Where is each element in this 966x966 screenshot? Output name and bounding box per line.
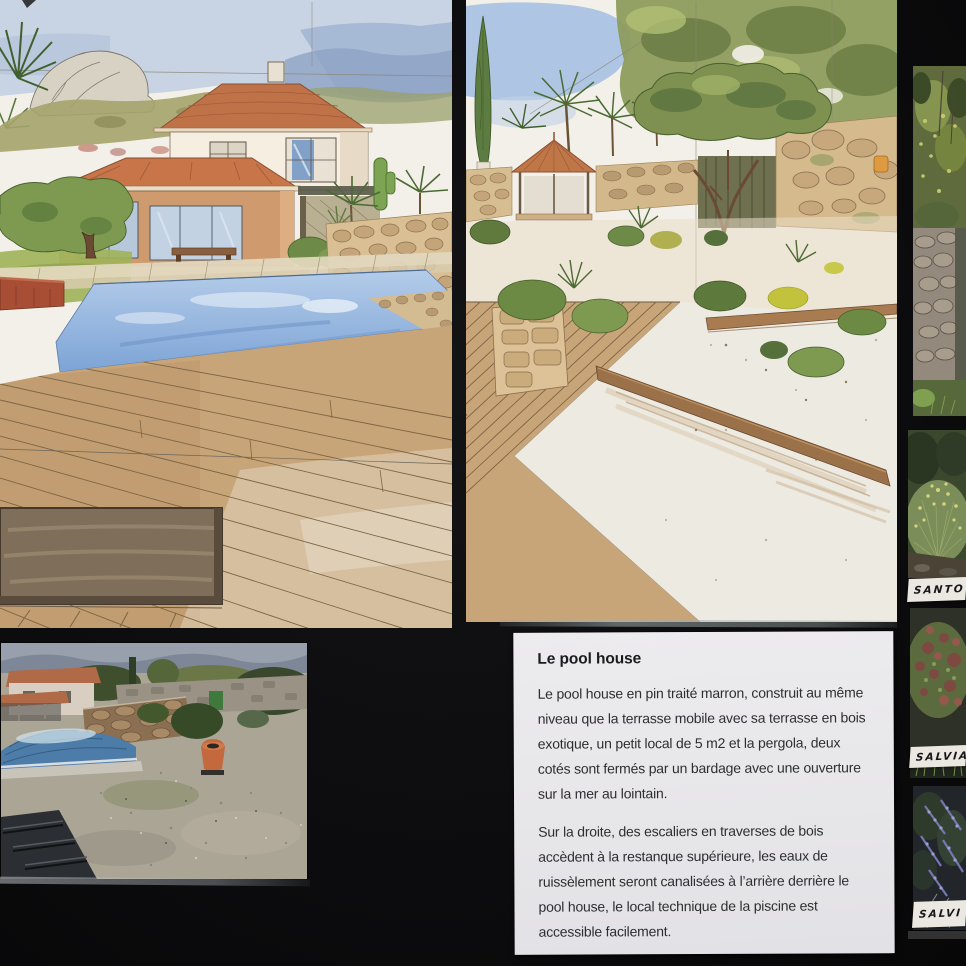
plant-label-salvia-2: SALVI (912, 900, 966, 928)
site-photo (1, 643, 307, 879)
plant-photo-santoline-svg (908, 430, 966, 578)
plant-photo-santoline (908, 430, 966, 578)
text-card-paragraph-1: Le pool house en pin traité marron, cons… (538, 680, 871, 806)
left-stone-wall (466, 167, 512, 222)
site-photo-svg (1, 643, 307, 879)
sketch-left-panel (0, 0, 452, 628)
plant-label-santoline: SANTO (907, 577, 966, 602)
left-sketch-svg (0, 0, 452, 628)
pool-house-text-card: Le pool house Le pool house en pin trait… (513, 631, 894, 955)
board-edge-highlight-bottom-right (908, 931, 966, 939)
right-sketch-svg (466, 0, 897, 622)
plant-photo-wall (913, 66, 966, 416)
presentation-board: Le pool house Le pool house en pin trait… (0, 0, 966, 966)
center-wall-and-hedge (596, 156, 776, 228)
plant-label-salvia: SALVIA (909, 745, 966, 768)
text-card-title: Le pool house (537, 649, 869, 668)
sketch-right-panel (466, 0, 897, 622)
red-planter (0, 278, 64, 310)
plant-photo-wall-svg (913, 66, 966, 416)
pergola (512, 132, 596, 220)
text-card-paragraph-2: Sur la droite, des escaliers en traverse… (538, 818, 871, 944)
